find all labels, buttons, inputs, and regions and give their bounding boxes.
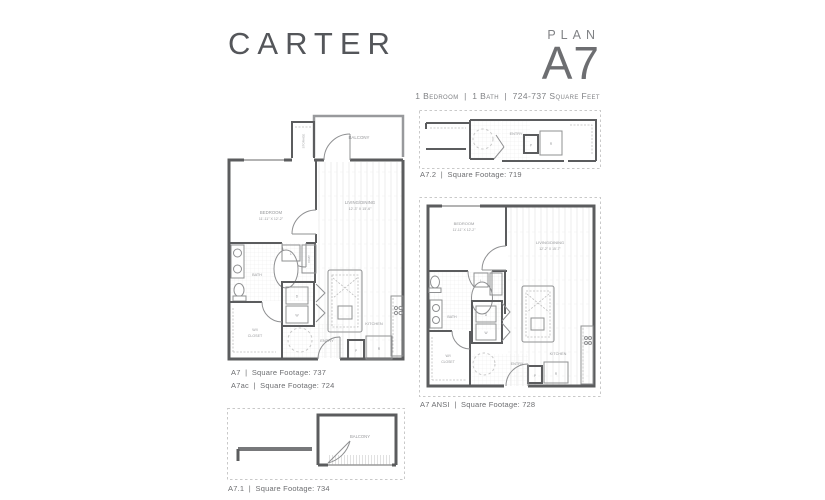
bedroom-dims: 11'-11" X 12'-2" xyxy=(259,217,284,221)
living-dims: 12'-3" X 15'-6" xyxy=(349,207,372,211)
entry-label: ENTRY xyxy=(511,362,524,366)
washer-label: W xyxy=(295,314,299,318)
sink-icon xyxy=(234,249,242,257)
closet-shelves xyxy=(432,337,466,380)
storage-label: STORAGE xyxy=(302,134,306,149)
balcony-door-arc xyxy=(324,134,350,160)
bath-label: BATH xyxy=(252,273,262,277)
bedroom-label: BEDROOM xyxy=(260,210,283,215)
balcony-label: BALCONY xyxy=(349,135,370,140)
kitchen-label: KITCHEN xyxy=(550,352,567,356)
linen-label: L xyxy=(480,279,482,283)
floorplan-a71: BALCONY xyxy=(226,407,406,485)
counter-outline xyxy=(570,125,592,155)
living-dims: 12'-2" X 15'-7" xyxy=(539,247,561,251)
variant-boundary xyxy=(228,409,405,480)
coat-label: COAT xyxy=(307,255,311,263)
wi-closet-label-1: W/I xyxy=(252,328,257,332)
bedroom-label: BEDROOM xyxy=(454,221,475,226)
bedroom-door-arc xyxy=(482,246,506,270)
floorplan-main-a7: BALCONY STORAGE BEDROOM 11'-11" X 12'-2"… xyxy=(226,112,408,366)
sink-icon xyxy=(433,317,440,324)
closet-walls xyxy=(426,123,470,149)
wi-closet-label-2: CLOSET xyxy=(248,334,263,338)
entry-tile-floor xyxy=(282,324,344,358)
balcony-label: BALCONY xyxy=(350,434,370,439)
washer-label: W xyxy=(484,331,487,335)
toilet-icon xyxy=(431,276,440,288)
refrigerator-label: R xyxy=(550,142,553,146)
pantry-label: P xyxy=(530,144,532,148)
wi-closet-label-2: CLOSET xyxy=(441,360,455,364)
toilet-tank xyxy=(233,296,246,301)
plan-name: A7 xyxy=(420,42,600,84)
plan-summary: 1 Bedroom | 1 Bath | 724-737 Square Feet xyxy=(330,91,600,101)
caption-a7ac: A7ac | Square Footage: 724 xyxy=(231,381,334,390)
floorplan-a72: ENTRY P R xyxy=(418,109,602,171)
balcony-sill xyxy=(328,455,392,465)
closet-walls xyxy=(428,331,470,386)
bedroom-door-arc xyxy=(292,210,316,234)
closet-door-arc xyxy=(262,302,282,322)
sink-icon xyxy=(234,265,242,273)
plan-title-block: PLAN A7 xyxy=(420,28,600,84)
property-name: CARTER xyxy=(228,26,397,62)
floorplan-sheet: CARTER PLAN A7 1 Bedroom | 1 Bath | 724-… xyxy=(0,0,825,500)
wi-closet-label-1: W/I xyxy=(445,354,450,358)
toilet-tank xyxy=(429,288,441,293)
closet-door-arc xyxy=(452,331,470,349)
kitchen-label: KITCHEN xyxy=(365,321,383,326)
floorplan-ansi: BEDROOM 11'-11" X 12'-2" LIVING/DINING 1… xyxy=(418,196,602,398)
sink-icon xyxy=(433,305,440,312)
entry-tile-floor xyxy=(472,354,528,386)
pantry-label: P xyxy=(534,374,536,378)
linen-label: L xyxy=(290,252,292,256)
toilet-icon xyxy=(234,284,244,297)
caption-ansi: A7 ANSI | Square Footage: 728 xyxy=(420,400,535,409)
living-label: LIVING/DINING xyxy=(345,200,376,205)
entry-label: ENTRY xyxy=(510,132,523,136)
caption-a72: A7.2 | Square Footage: 719 xyxy=(420,170,522,179)
bath-label: BATH xyxy=(447,315,457,319)
living-label: LIVING/DINING xyxy=(536,240,564,245)
bedroom-dims: 11'-11" X 12'-2" xyxy=(453,228,477,232)
caption-a7: A7 | Square Footage: 737 xyxy=(231,368,326,377)
caption-a71: A7.1 | Square Footage: 734 xyxy=(228,484,330,493)
